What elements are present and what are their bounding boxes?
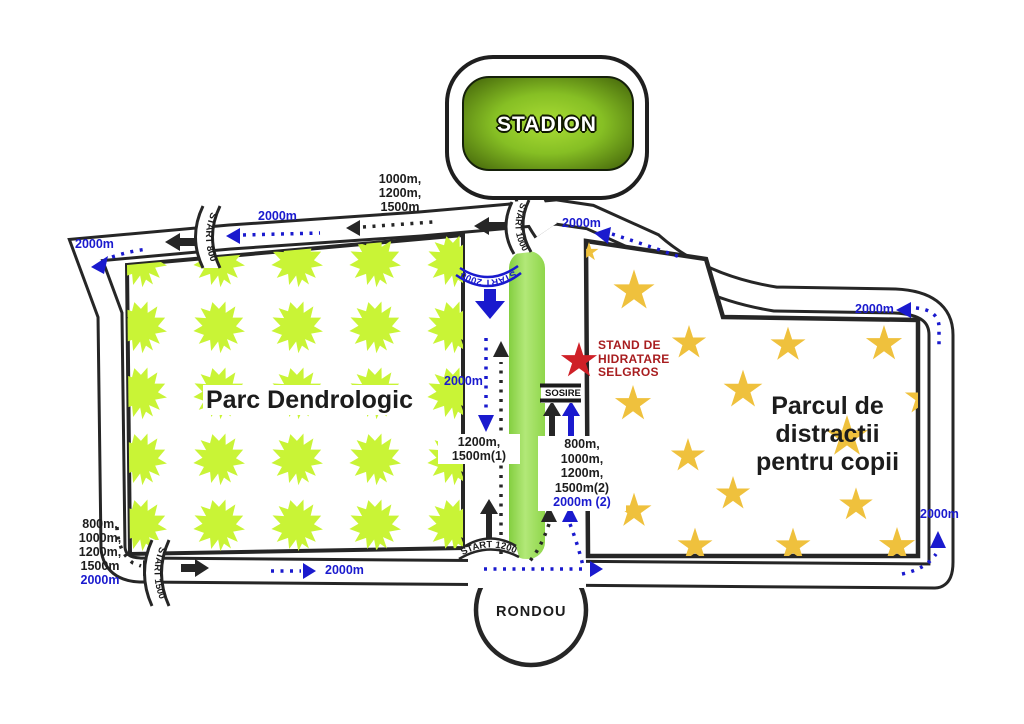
distance-2000m-corridor: 2000m — [444, 374, 483, 388]
finish-arrow-up-icon — [549, 416, 555, 438]
corridor-arrow-up-icon — [480, 499, 498, 514]
distance-line: 1200m, — [360, 186, 440, 200]
start-2000-arrow-down-icon — [475, 301, 505, 319]
finish-straight-strip — [509, 251, 545, 559]
park-distractii-line: distractii — [740, 420, 915, 448]
distance-line-2000: 2000m (2) — [541, 495, 623, 510]
park-dendrologic-label: Parc Dendrologic — [203, 385, 416, 415]
arrowhead-up-icon — [493, 341, 509, 357]
distance-line: 1500m(2) — [541, 481, 623, 496]
distance-2000m-top-inner: 2000m — [258, 209, 297, 223]
race-course-map: START 800 START 1000 START 1500 START 20… — [0, 0, 1024, 724]
hydration-line: STAND DE — [598, 339, 670, 353]
stadium-label: STADION — [497, 113, 597, 137]
distance-line: 1000m, — [541, 452, 623, 467]
distance-line: 1200m, — [62, 545, 138, 559]
distance-corridor-group: 1200m, 1500m(1) — [438, 434, 520, 464]
start-2000-arrow-down-icon — [484, 289, 496, 302]
distance-line: 1200m, — [541, 466, 623, 481]
distance-line: 1000m, — [360, 172, 440, 186]
rondou-label: RONDOU — [496, 604, 566, 620]
distance-top-group: 1000m, 1200m, 1500m — [360, 172, 440, 214]
distance-2000m-right-top: 2000m — [855, 302, 894, 316]
hydration-line: HIDRATARE — [598, 353, 670, 367]
distance-line: 1500m(1) — [441, 449, 517, 463]
distance-line: 1000m, — [62, 531, 138, 545]
distance-line: 800m, — [541, 437, 623, 452]
finish-arrow-up-icon — [543, 401, 561, 416]
distance-finish-group: 800m, 1000m, 1200m, 1500m(2) 2000m (2) — [538, 436, 626, 511]
distance-line: 1500m — [360, 200, 440, 214]
distance-line-2000: 2000m — [62, 573, 138, 587]
distance-2000m-bottom: 2000m — [325, 563, 364, 577]
road-arrow-right-icon — [181, 564, 195, 572]
distance-2000m-stadium-right: 2000m — [562, 216, 601, 230]
arrowhead-down-icon — [478, 415, 494, 432]
corridor-arrow-up-icon — [486, 514, 492, 540]
distance-line: 800m, — [62, 517, 138, 531]
distance-bottom-left-group: 800m, 1000m, 1200m, 1500m 2000m — [62, 517, 138, 587]
hydration-stand-label: STAND DE HIDRATARE SELGROS — [598, 339, 670, 380]
finish-label: SOSIRE — [545, 388, 581, 399]
finish-arrow-up-blue-icon — [562, 401, 580, 416]
distance-line: 1500m — [62, 559, 138, 573]
distance-2000m-right-bottom: 2000m — [920, 507, 959, 521]
park-distractii-label: Parcul de distractii pentru copii — [740, 392, 915, 476]
park-distractii-line: pentru copii — [740, 448, 915, 476]
distance-2000m-top-left: 2000m — [75, 237, 114, 251]
distance-line: 1200m, — [441, 435, 517, 449]
road-arrow-left-icon — [489, 222, 507, 230]
finish-arrow-up-blue-icon — [568, 416, 574, 438]
hydration-line: SELGROS — [598, 366, 670, 380]
park-distractii-line: Parcul de — [740, 392, 915, 420]
